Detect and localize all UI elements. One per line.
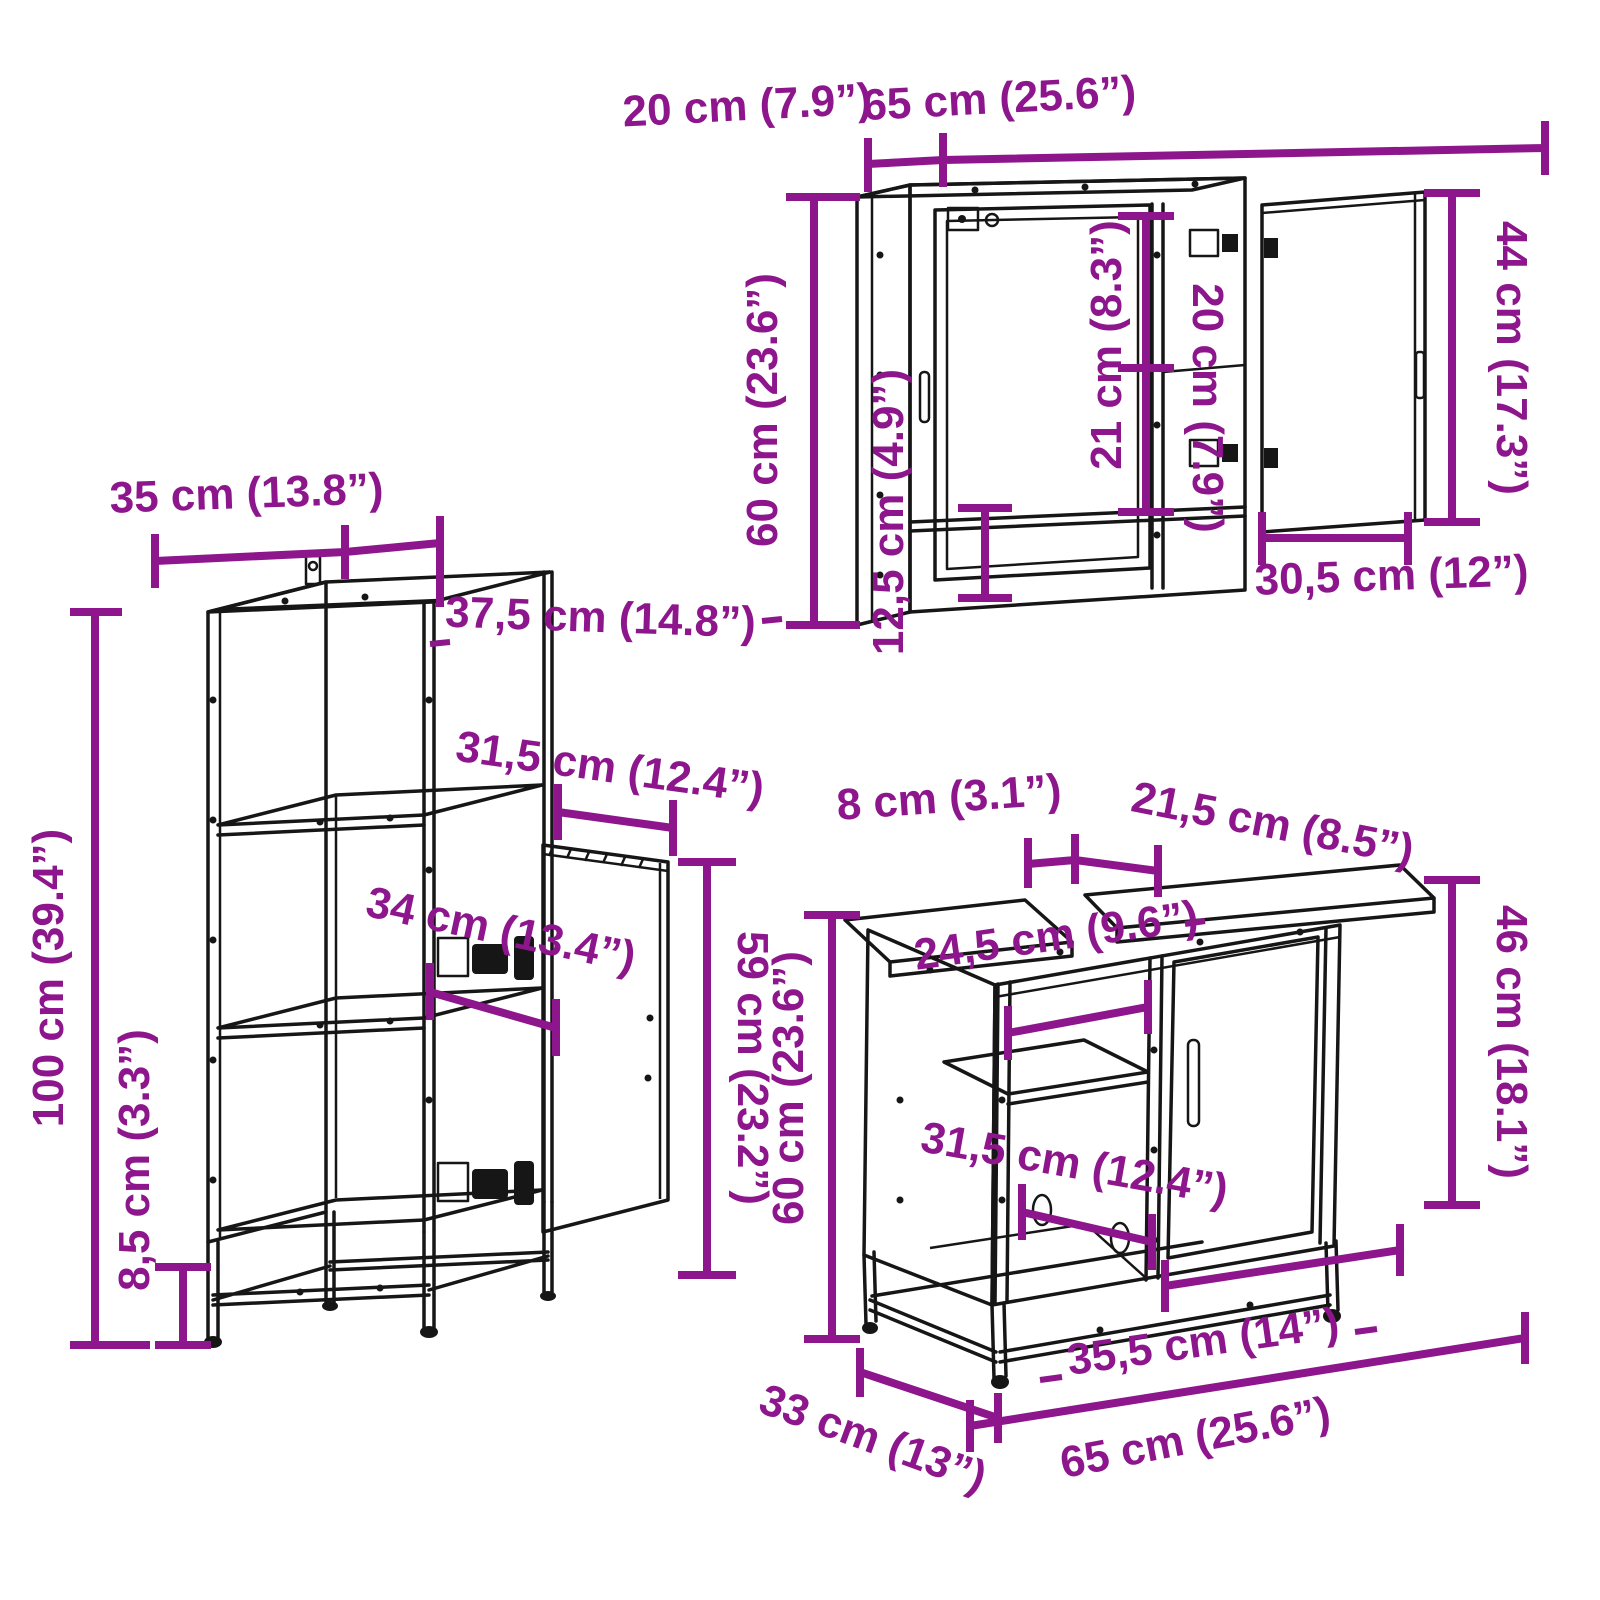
wall-right-section-label: 20 cm (7.9”) <box>1183 283 1232 532</box>
dim-tall-door-opening: 31,5 cm (12.4”) <box>453 722 767 856</box>
tall-cabinet-open-door <box>543 845 668 1232</box>
door-handle-icon <box>1188 1040 1199 1126</box>
door-handle-icon <box>1416 352 1424 398</box>
shelf <box>944 1040 1148 1104</box>
wall-depth-label: 20 cm (7.9”) <box>621 75 873 137</box>
dim-sink-pipe-gap: 8 cm (3.1”) <box>835 765 1075 888</box>
door-handle-icon <box>920 372 929 422</box>
wall-door-height-label: 44 cm (17.3”) <box>1487 221 1536 495</box>
tall-cabinet-base-frame <box>204 1202 556 1348</box>
dim-tall-door-height: 59 cm (23.2”) <box>678 862 777 1275</box>
wall-height-label: 60 cm (23.6”) <box>738 273 787 547</box>
dim-tall-base-height: 8,5 cm (3.3”) <box>110 1029 211 1345</box>
foot-icon <box>420 1326 438 1338</box>
wall-door-width-label: 30,5 cm (12”) <box>1254 546 1529 605</box>
tall-cabinet-hinges <box>438 936 534 1205</box>
sink-door-height-label: 46 cm (18.1”) <box>1487 905 1536 1179</box>
foot-icon <box>540 1291 556 1301</box>
wall-shelf-height-label: 12,5 cm (4.9”) <box>864 369 913 655</box>
sink-cabinet-door-closed <box>1168 937 1318 1258</box>
tall-depth-label: 37,5 cm (14.8”) <box>444 588 756 648</box>
hinge-icon <box>1190 230 1218 256</box>
foot-icon <box>991 1375 1009 1389</box>
sink-inner-depth-label: 31,5 cm (12.4”) <box>917 1113 1231 1215</box>
tall-base-height-label: 8,5 cm (3.3”) <box>110 1029 159 1291</box>
dim-wall-door-width: 30,5 cm (12”) <box>1254 512 1529 605</box>
wall-width-label: 65 cm (25.6”) <box>861 67 1137 130</box>
wall-top-section-label: 21 cm (8.3”) <box>1082 220 1131 469</box>
sink-height-label: 60 cm (23.6”) <box>764 951 813 1225</box>
dim-wall-height: 60 cm (23.6”) <box>738 197 860 625</box>
dim-sink-depth: 33 cm (13”) <box>753 1348 998 1502</box>
dim-wall-top-section: 21 cm (8.3”) 20 cm (7.9”) <box>1082 216 1232 533</box>
tall-width-label: 35 cm (13.8”) <box>109 464 384 523</box>
foot-icon <box>862 1322 878 1334</box>
sink-depth-label: 33 cm (13”) <box>753 1375 993 1502</box>
tall-height-label: 100 cm (39.4”) <box>24 829 73 1127</box>
tall-door-opening-label: 31,5 cm (12.4”) <box>453 722 767 814</box>
dimension-diagram-canvas: 20 cm (7.9”) 65 cm (25.6”) 60 cm (23.6”)… <box>0 0 1600 1600</box>
dim-sink-height: 60 cm (23.6”) <box>764 915 860 1339</box>
sink-cabinet-dimensions: 8 cm (3.1”) 21,5 cm (8.5”) 46 cm (18.1”)… <box>753 765 1536 1502</box>
dim-wall-top: 20 cm (7.9”) 65 cm (25.6”) <box>621 67 1545 192</box>
wall-cabinet-dimensions: 20 cm (7.9”) 65 cm (25.6”) 60 cm (23.6”)… <box>621 67 1545 655</box>
shelf <box>218 785 542 835</box>
sink-top-right-label: 21,5 cm (8.5”) <box>1128 772 1418 875</box>
tall-cabinet-screws <box>210 594 433 1296</box>
dim-wall-door-height: 44 cm (17.3”) <box>1424 193 1536 522</box>
wall-cabinet-open-door <box>1262 192 1425 532</box>
sink-open-shelf-label: 24,5 cm (9.6”) <box>911 891 1201 979</box>
diagram-page: 20 cm (7.9”) 65 cm (25.6”) 60 cm (23.6”)… <box>0 0 1600 1600</box>
foot-icon <box>322 1301 338 1311</box>
dim-wall-open-shelf: 12,5 cm (4.9”) <box>864 369 1012 655</box>
dim-sink-door-height: 46 cm (18.1”) <box>1424 880 1536 1205</box>
sink-pipe-gap-label: 8 cm (3.1”) <box>835 765 1063 830</box>
